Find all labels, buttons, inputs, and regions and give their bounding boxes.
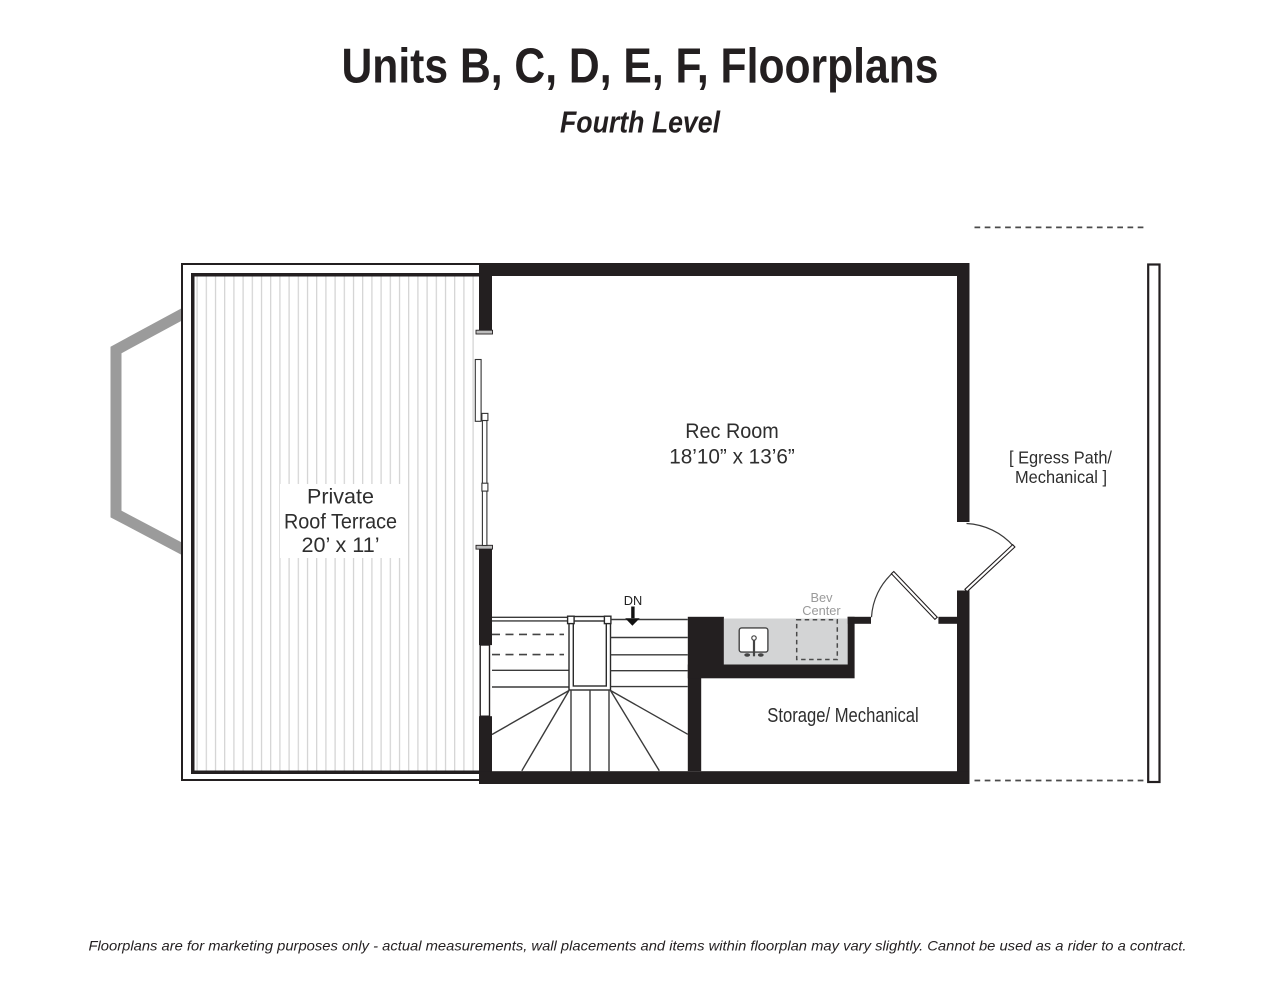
svg-text:Floorplans are for marketing p: Floorplans are for marketing purposes on… [89, 939, 1187, 954]
svg-text:Storage/ Mechanical: Storage/ Mechanical [767, 705, 919, 727]
svg-text:18’10” x 13’6”: 18’10” x 13’6” [669, 444, 795, 468]
svg-text:Units B, C, D, E, F, Floorplan: Units B, C, D, E, F, Floorplans [342, 40, 939, 94]
svg-text:20’ x 11’: 20’ x 11’ [302, 533, 380, 557]
svg-text:Private: Private [307, 485, 374, 509]
svg-text:[ Egress Path/: [ Egress Path/ [1009, 448, 1112, 468]
svg-text:Mechanical ]: Mechanical ] [1015, 467, 1107, 487]
svg-text:Rec Room: Rec Room [685, 419, 779, 443]
svg-text:DN: DN [624, 593, 642, 608]
svg-text:Roof Terrace: Roof Terrace [284, 510, 397, 534]
svg-text:Center: Center [802, 603, 841, 618]
svg-text:Fourth Level: Fourth Level [560, 105, 721, 140]
